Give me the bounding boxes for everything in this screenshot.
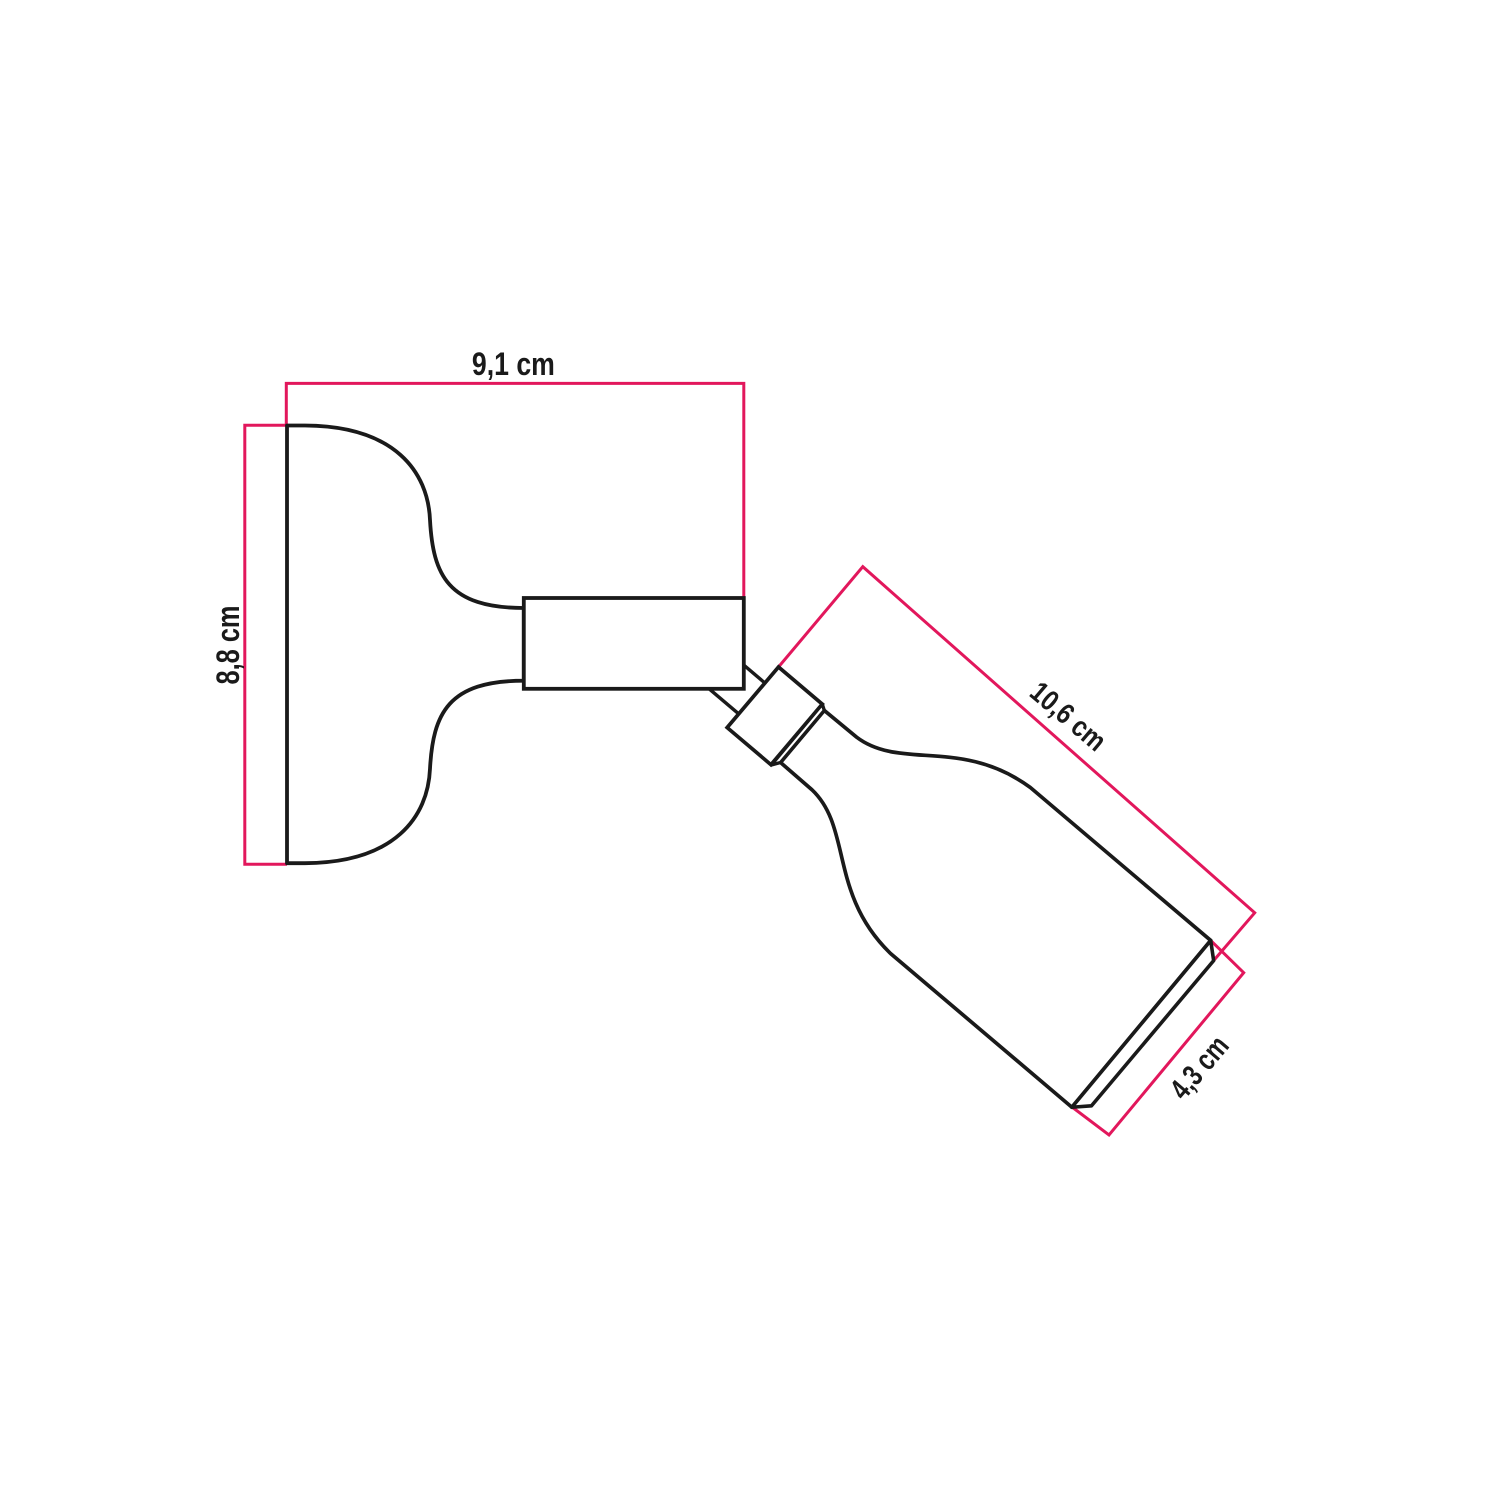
svg-text:9,1 cm: 9,1 cm	[472, 346, 555, 382]
svg-text:8,8 cm: 8,8 cm	[210, 606, 246, 685]
